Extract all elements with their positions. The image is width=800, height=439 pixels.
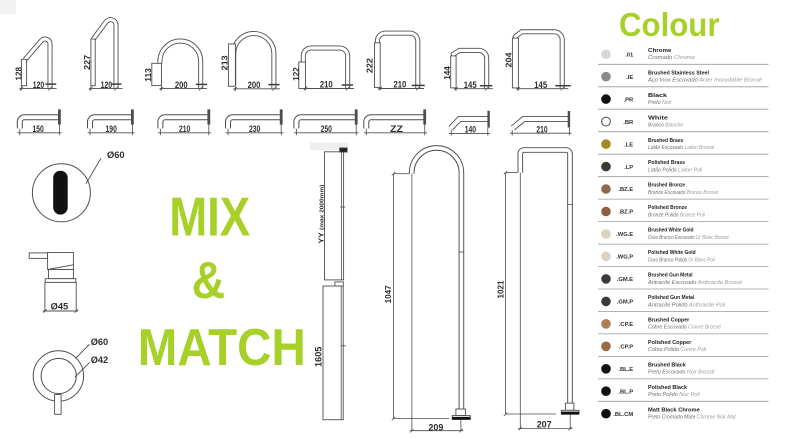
svg-text:213: 213 bbox=[220, 55, 230, 70]
svg-text:190: 190 bbox=[106, 124, 117, 134]
svg-text:.BL.CM: .BL.CM bbox=[613, 412, 633, 418]
svg-text:Antracite Escovado Anthracite: Antracite Escovado Anthracite Brossé bbox=[647, 280, 742, 286]
svg-text:Preto Noir: Preto Noir bbox=[648, 100, 673, 106]
svg-text:Brushed Copper: Brushed Copper bbox=[648, 318, 690, 324]
svg-text:120: 120 bbox=[33, 80, 45, 90]
svg-text:&: & bbox=[192, 252, 226, 310]
svg-text:MATCH: MATCH bbox=[138, 319, 306, 377]
svg-text:145: 145 bbox=[534, 80, 547, 90]
svg-text:Polished Gun Metal: Polished Gun Metal bbox=[648, 295, 695, 301]
svg-text:Preto Cromado Mate Chrome Noir: Preto Cromado Mate Chrome Noir Mat bbox=[648, 415, 736, 421]
svg-text:Branco Blanche: Branco Blanche bbox=[648, 123, 683, 129]
svg-text:Polished Black: Polished Black bbox=[648, 385, 688, 391]
svg-text:MIX: MIX bbox=[169, 185, 250, 247]
svg-text:1047: 1047 bbox=[383, 285, 393, 303]
svg-text:Brushed Black: Brushed Black bbox=[648, 363, 687, 369]
svg-text:210: 210 bbox=[536, 125, 547, 135]
svg-text:.GM.E: .GM.E bbox=[617, 277, 634, 283]
svg-text:140: 140 bbox=[465, 125, 476, 135]
svg-text:Latão Escovado Laiton Brossé: Latão Escovado Laiton Brossé bbox=[648, 145, 714, 151]
svg-text:.CP.P: .CP.P bbox=[619, 345, 634, 351]
svg-text:Brushed Bronze: Brushed Bronze bbox=[648, 183, 685, 189]
svg-text:.CP.E: .CP.E bbox=[619, 322, 634, 328]
svg-text:204: 204 bbox=[503, 52, 513, 67]
svg-text:150: 150 bbox=[32, 124, 43, 134]
svg-text:.GM.P: .GM.P bbox=[617, 300, 634, 306]
svg-text:Polished White Gold: Polished White Gold bbox=[648, 250, 696, 256]
svg-text:Black: Black bbox=[648, 93, 668, 99]
svg-text:.LE: .LE bbox=[624, 142, 633, 148]
svg-text:200: 200 bbox=[248, 80, 261, 90]
svg-text:Polished Bronze: Polished Bronze bbox=[648, 205, 687, 211]
svg-text:.PR: .PR bbox=[624, 97, 634, 103]
svg-text:Cobre Escovado Cuivre Brossé: Cobre Escovado Cuivre Brossé bbox=[648, 325, 721, 331]
svg-text:209: 209 bbox=[428, 423, 443, 434]
svg-text:145: 145 bbox=[464, 80, 477, 90]
svg-text:Ouro Branco Polido Or Blanc Po: Ouro Branco Polido Or Blanc Poli bbox=[648, 257, 715, 263]
svg-text:ZZ: ZZ bbox=[390, 124, 403, 134]
svg-text:.WG.P: .WG.P bbox=[616, 255, 633, 261]
svg-text:Aço Inox Escovado Acier Inoxyd: Aço Inox Escovado Acier Inoxydable Bross… bbox=[647, 78, 762, 84]
svg-text:120: 120 bbox=[101, 80, 113, 90]
svg-text:Bronze Polido Bronze Poli: Bronze Polido Bronze Poli bbox=[648, 212, 706, 218]
svg-text:Ø60: Ø60 bbox=[107, 149, 125, 160]
svg-text:.WG.E: .WG.E bbox=[616, 232, 633, 238]
svg-text:.BZ.P: .BZ.P bbox=[618, 210, 633, 216]
svg-text:128: 128 bbox=[13, 67, 23, 81]
svg-text:Matt Black Chrome: Matt Black Chrome bbox=[648, 407, 700, 413]
svg-text:1021: 1021 bbox=[495, 280, 505, 298]
svg-text:207: 207 bbox=[537, 419, 552, 430]
svg-text:210: 210 bbox=[394, 80, 407, 90]
svg-text:200: 200 bbox=[175, 80, 188, 90]
svg-text:Brushed Stainless Steel: Brushed Stainless Steel bbox=[648, 70, 709, 76]
svg-text:113: 113 bbox=[143, 68, 153, 82]
svg-text:Cobre Polido Cuivre Poli: Cobre Polido Cuivre Poli bbox=[648, 347, 707, 353]
svg-text:Polished Brass: Polished Brass bbox=[648, 160, 685, 166]
svg-text:230: 230 bbox=[249, 124, 260, 134]
svg-text:Latão Polido Laiton Poli: Latão Polido Laiton Poli bbox=[648, 168, 703, 174]
svg-text:144: 144 bbox=[442, 66, 452, 80]
svg-text:.BL.E: .BL.E bbox=[618, 367, 633, 373]
svg-text:250: 250 bbox=[321, 124, 332, 134]
svg-text:122: 122 bbox=[291, 67, 301, 81]
svg-text:Ouro Branco Escovado Or Blanc: Ouro Branco Escovado Or Blanc Brossé bbox=[648, 235, 729, 241]
svg-text:Ø45: Ø45 bbox=[51, 301, 69, 312]
svg-text:Brushed Brass: Brushed Brass bbox=[648, 138, 683, 144]
svg-text:Antracite Polido Anthracite Po: Antracite Polido Anthracite Poli bbox=[647, 302, 726, 308]
svg-text:Brushed Gun Metal: Brushed Gun Metal bbox=[648, 273, 693, 279]
svg-text:Chrome: Chrome bbox=[648, 48, 671, 54]
svg-text:210: 210 bbox=[179, 124, 190, 134]
svg-text:.LP: .LP bbox=[624, 165, 633, 171]
svg-text:Preto Polido Noir Poli: Preto Polido Noir Poli bbox=[648, 392, 701, 398]
svg-text:Ø60: Ø60 bbox=[91, 336, 109, 347]
svg-text:YY (max 2000mm): YY (max 2000mm) bbox=[318, 184, 325, 243]
svg-text:.BR: .BR bbox=[623, 120, 634, 126]
svg-text:Polished Copper: Polished Copper bbox=[648, 340, 692, 346]
svg-text:Bronze Escovado Bronze Brossé: Bronze Escovado Bronze Brossé bbox=[648, 190, 718, 196]
svg-text:.IE: .IE bbox=[626, 75, 633, 81]
svg-text:210: 210 bbox=[320, 80, 333, 90]
svg-text:White: White bbox=[648, 115, 668, 121]
svg-text:Preto Escovado Noir Brossé: Preto Escovado Noir Brossé bbox=[648, 370, 715, 376]
svg-text:Cromado Chrome: Cromado Chrome bbox=[648, 55, 695, 61]
svg-text:222: 222 bbox=[365, 58, 375, 73]
svg-text:Colour: Colour bbox=[619, 7, 720, 44]
svg-text:Brushed White Gold: Brushed White Gold bbox=[648, 228, 694, 234]
svg-text:227: 227 bbox=[82, 55, 92, 70]
svg-text:.01: .01 bbox=[625, 52, 634, 58]
svg-text:1605: 1605 bbox=[313, 347, 323, 367]
svg-text:Ø42: Ø42 bbox=[91, 354, 109, 365]
svg-text:.BL.P: .BL.P bbox=[618, 389, 633, 395]
svg-text:.BZ.E: .BZ.E bbox=[618, 187, 633, 193]
